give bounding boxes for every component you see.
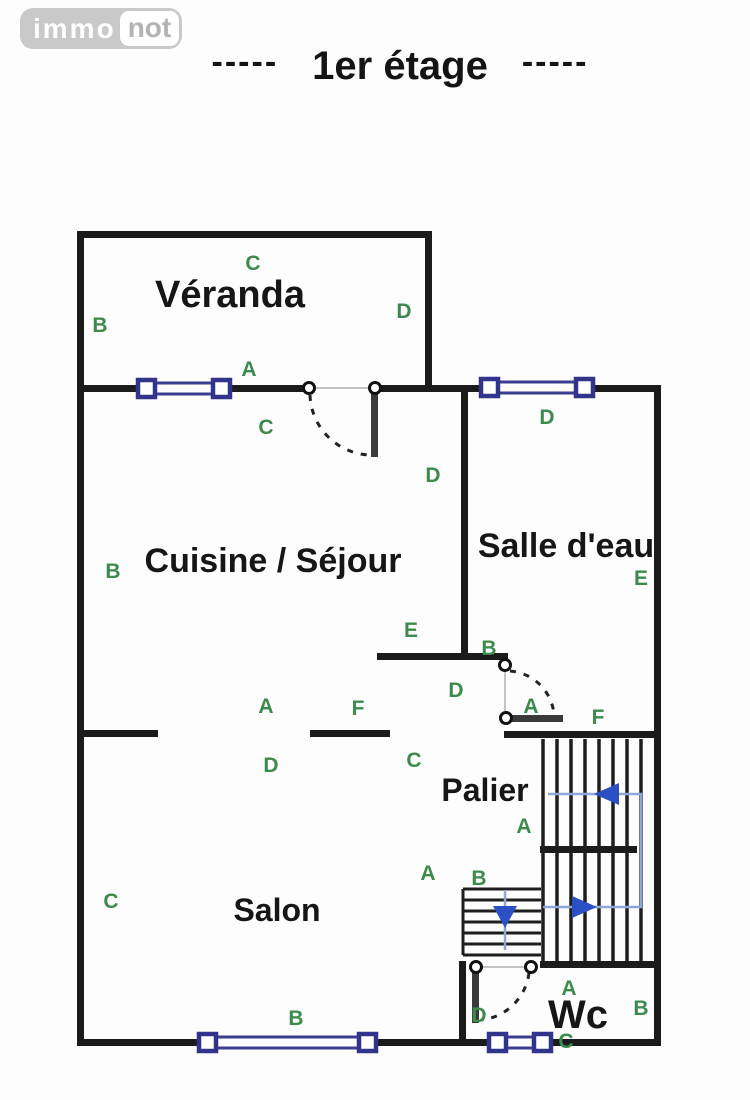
zone-marker-e: E [634,567,648,590]
zone-marker-b: B [92,314,107,337]
zone-marker-a: A [561,977,576,1000]
wall-segment [77,231,84,1046]
wall-segment [370,385,488,392]
zone-marker-e: E [404,619,418,642]
floor-plan-drawing: Véranda Cuisine / Séjour Salle d'eau Pal… [0,0,750,1100]
zone-marker-c: C [406,749,421,772]
wall-segment [588,385,661,392]
floor-plan-page: immo not ----- 1er étage ----- [0,0,750,1100]
stairs-direction-path [493,783,641,950]
zone-marker-d: D [448,679,463,702]
stairs-down-arrow-icon [493,906,517,928]
wall-segment [654,385,661,1046]
room-label-salle-deau: Salle d'eau [478,527,654,565]
wall-segment [366,1039,494,1046]
wall-segment [77,231,432,238]
wall-segment [504,731,661,738]
window-symbol-salon [199,1034,376,1051]
zone-marker-b: B [481,637,496,660]
zone-marker-c: C [258,416,273,439]
door-symbol-veranda [304,383,381,458]
wall-segment [540,846,637,853]
zone-marker-d: D [539,406,554,429]
wall-segment [310,730,390,737]
zone-marker-d: D [263,754,278,777]
wall-segment [459,961,466,1046]
zone-marker-d: D [471,1004,486,1027]
zone-marker-b: B [105,560,120,583]
wall-segment [425,231,432,392]
zone-marker-a: A [420,862,435,885]
room-label-salon: Salon [233,892,320,928]
zone-marker-d: D [396,300,411,323]
room-label-cuisine-sejour: Cuisine / Séjour [145,542,402,580]
window-symbol-veranda [138,380,230,397]
room-label-wc: Wc [548,993,608,1037]
zone-marker-b: B [288,1007,303,1030]
room-label-palier: Palier [441,772,528,808]
room-label-veranda: Véranda [155,274,306,316]
zone-marker-d: D [425,464,440,487]
zone-marker-a: A [258,695,273,718]
wall-segment [77,1039,209,1046]
zone-marker-c: C [103,890,118,913]
zone-marker-b: B [633,997,648,1020]
zone-marker-c: C [245,252,260,275]
window-symbol-salle-deau [481,379,593,396]
zone-marker-f: F [352,697,365,720]
wall-segment [228,385,314,392]
zone-marker-a: A [516,815,531,838]
wall-segment [77,385,139,392]
wall-segment [540,961,661,968]
wall-segment [461,389,468,660]
zone-marker-b: B [471,867,486,890]
zone-markers-layer: CBDACDDBEEBDAFAFDCAABCBABDC [92,252,648,1053]
zone-marker-a: A [241,358,256,381]
walls-layer [77,231,661,1046]
zone-marker-a: A [523,695,538,718]
zone-marker-c: C [558,1030,573,1053]
wall-segment [77,730,158,737]
window-symbol-wc [489,1034,551,1051]
zone-marker-f: F [592,706,605,729]
